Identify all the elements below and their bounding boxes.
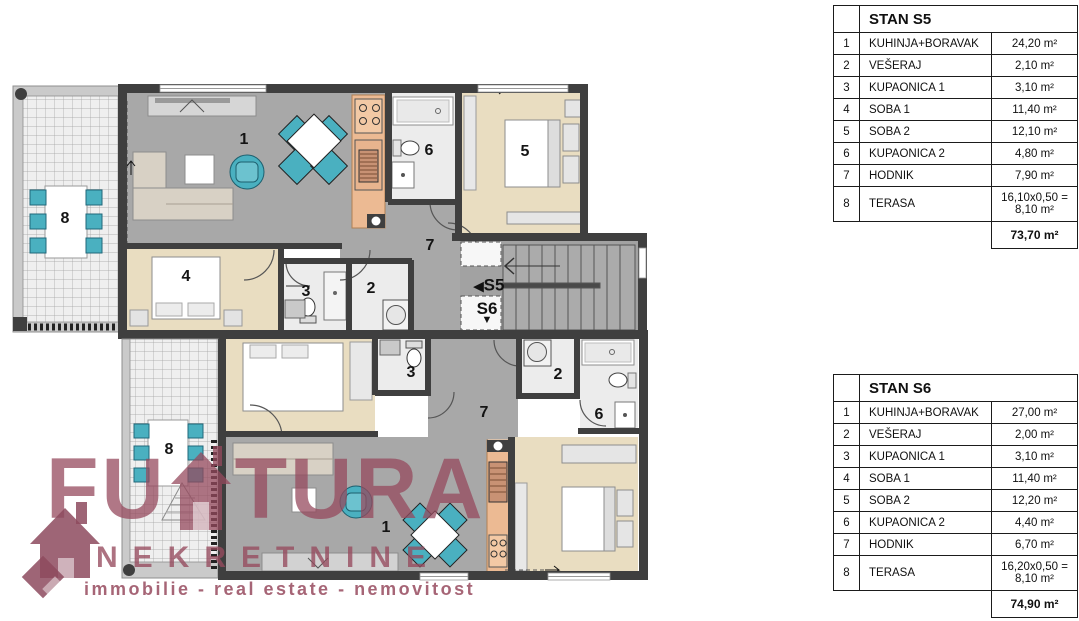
table-row: 4SOBA 111,40 m² [834, 99, 1078, 121]
stan-s6-table: STAN S6 1KUHINJA+BORAVAK27,00 m² 2VEŠERA… [833, 374, 1078, 618]
table-row: 6KUPAONICA 24,80 m² [834, 143, 1078, 165]
table-row: 2VEŠERAJ2,00 m² [834, 424, 1078, 446]
header-num-cell [834, 6, 860, 33]
room-label-terrace-s5: 8 [61, 211, 70, 227]
left-arrow-icon: ◀ [474, 279, 484, 294]
floor-plan-drawing [0, 0, 660, 621]
room-label-hall-s6: 7 [480, 405, 489, 421]
table-row: 7HODNIK7,90 m² [834, 165, 1078, 187]
table-header: STAN S5 [834, 6, 1078, 33]
table-row: 3KUPAONICA 13,10 m² [834, 77, 1078, 99]
table-row: 5SOBA 212,10 m² [834, 121, 1078, 143]
room-label-bath1-s5: 3 [302, 284, 311, 300]
dividing-wall [118, 330, 648, 339]
room-label-bath1-s6: 3 [407, 365, 416, 381]
table-stan-s5: STAN S5 1KUHINJA+BORAVAK24,20 m² 2VEŠERA… [833, 5, 1077, 249]
room-label-bedroom1-s5: 4 [182, 269, 191, 285]
table-row: 5SOBA 212,20 m² [834, 490, 1078, 512]
room-label-laundry-s5: 2 [367, 281, 376, 297]
room-label-bath2-s6: 6 [595, 407, 604, 423]
stair-label-s6: S6▼ [477, 300, 498, 326]
kitchen-s6 [487, 440, 509, 573]
table-row: 8TERASA16,10x0,50 = 8,10 m² [834, 187, 1078, 222]
stan-s5-table: STAN S5 1KUHINJA+BORAVAK24,20 m² 2VEŠERA… [833, 5, 1078, 249]
table-total-row: 74,90 m² [834, 591, 1078, 618]
table-row: 3KUPAONICA 13,10 m² [834, 446, 1078, 468]
room-label-terrace-s6: 8 [165, 442, 174, 458]
table-row: 1KUHINJA+BORAVAK27,00 m² [834, 402, 1078, 424]
corner-post [13, 317, 27, 331]
room-label-living-s6: 1 [382, 520, 391, 536]
table-row: 8TERASA16,20x0,50 = 8,10 m² [834, 556, 1078, 591]
table-total: 73,70 m² [992, 222, 1078, 249]
table-row: 7HODNIK6,70 m² [834, 534, 1078, 556]
room-label-living-s5: 1 [240, 132, 249, 148]
table-row: 4SOBA 111,40 m² [834, 468, 1078, 490]
table-total-row: 73,70 m² [834, 222, 1078, 249]
room-label-laundry-s6: 2 [554, 367, 563, 383]
kitchen-s5 [352, 95, 385, 228]
table-header: STAN S6 [834, 375, 1078, 402]
washer-s5 [383, 300, 410, 330]
stair-label-s5: ◀S5 [474, 277, 505, 294]
down-arrow-icon: ▼ [482, 315, 493, 326]
table-row: 6KUPAONICA 24,40 m² [834, 512, 1078, 534]
corner-post [15, 88, 27, 100]
room-label-bedroom2-s5: 5 [521, 144, 530, 160]
terrace-s6 [122, 339, 218, 578]
table-stan-s6: STAN S6 1KUHINJA+BORAVAK27,00 m² 2VEŠERA… [833, 374, 1077, 618]
entry-door-s5 [461, 242, 501, 266]
header-num-cell [834, 375, 860, 402]
room-hall-s6 [428, 339, 518, 439]
terrace-s5 [13, 86, 120, 332]
floor-plan-page: 1 4 3 2 6 5 7 8 7 2 6 3 1 8 ◀S5 S6▼ FU T… [0, 0, 1079, 621]
table-total: 74,90 m² [992, 591, 1078, 618]
table-title: STAN S6 [860, 375, 1078, 402]
dining-set [403, 503, 467, 567]
table-row: 2VEŠERAJ2,10 m² [834, 55, 1078, 77]
table-row: 1KUHINJA+BORAVAK24,20 m² [834, 33, 1078, 55]
room-label-bath2-s5: 6 [425, 143, 434, 159]
room-label-hall-s5: 7 [426, 238, 435, 254]
table-title: STAN S5 [860, 6, 1078, 33]
